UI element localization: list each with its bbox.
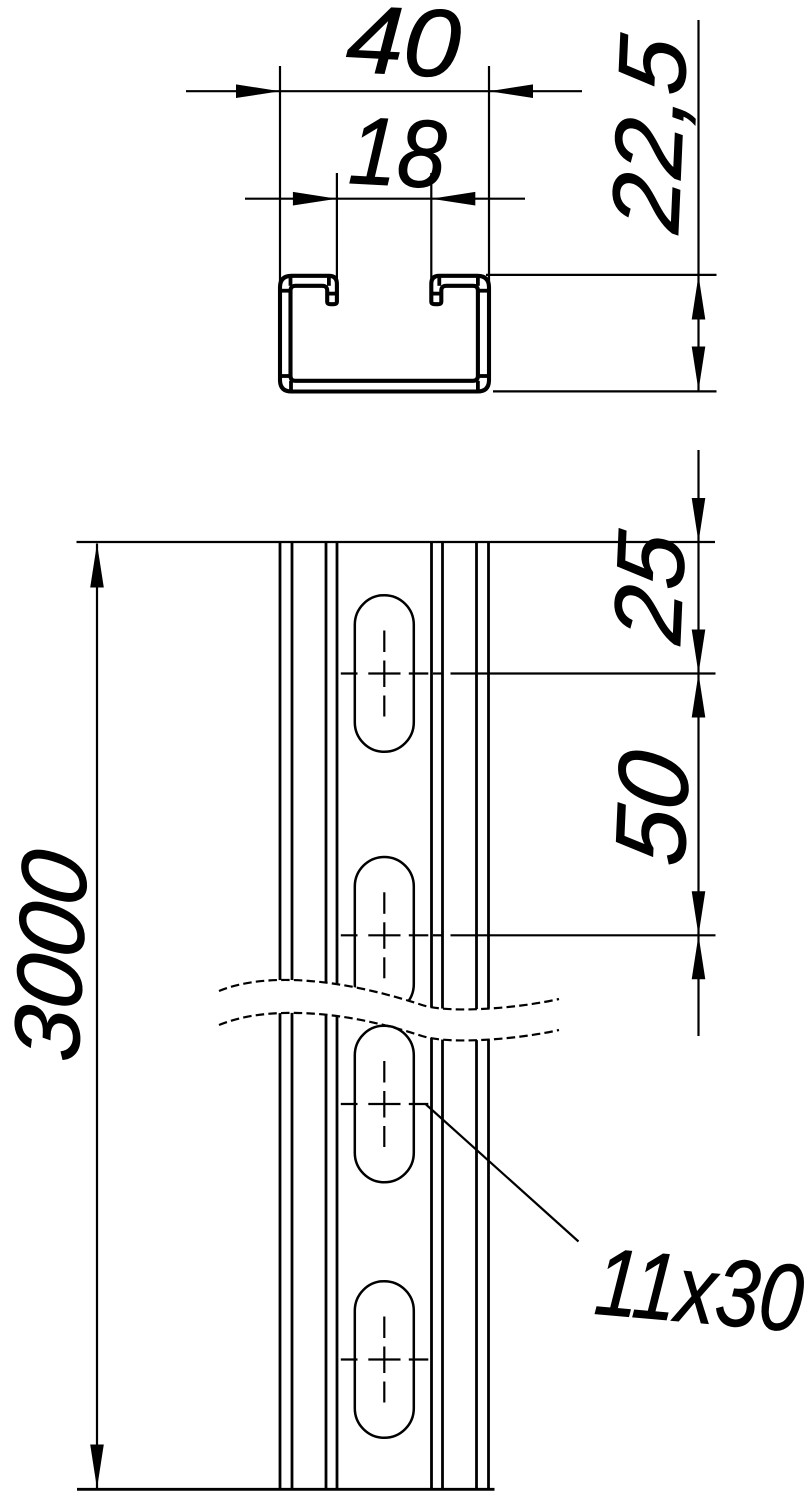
svg-text:40: 40 — [344, 0, 463, 98]
svg-text:50: 50 — [595, 744, 711, 871]
svg-text:3000: 3000 — [0, 844, 107, 1067]
svg-text:11x30: 11x30 — [591, 1229, 804, 1353]
svg-text:25: 25 — [595, 525, 706, 649]
svg-text:18: 18 — [346, 97, 448, 209]
svg-text:22,5: 22,5 — [593, 29, 708, 238]
